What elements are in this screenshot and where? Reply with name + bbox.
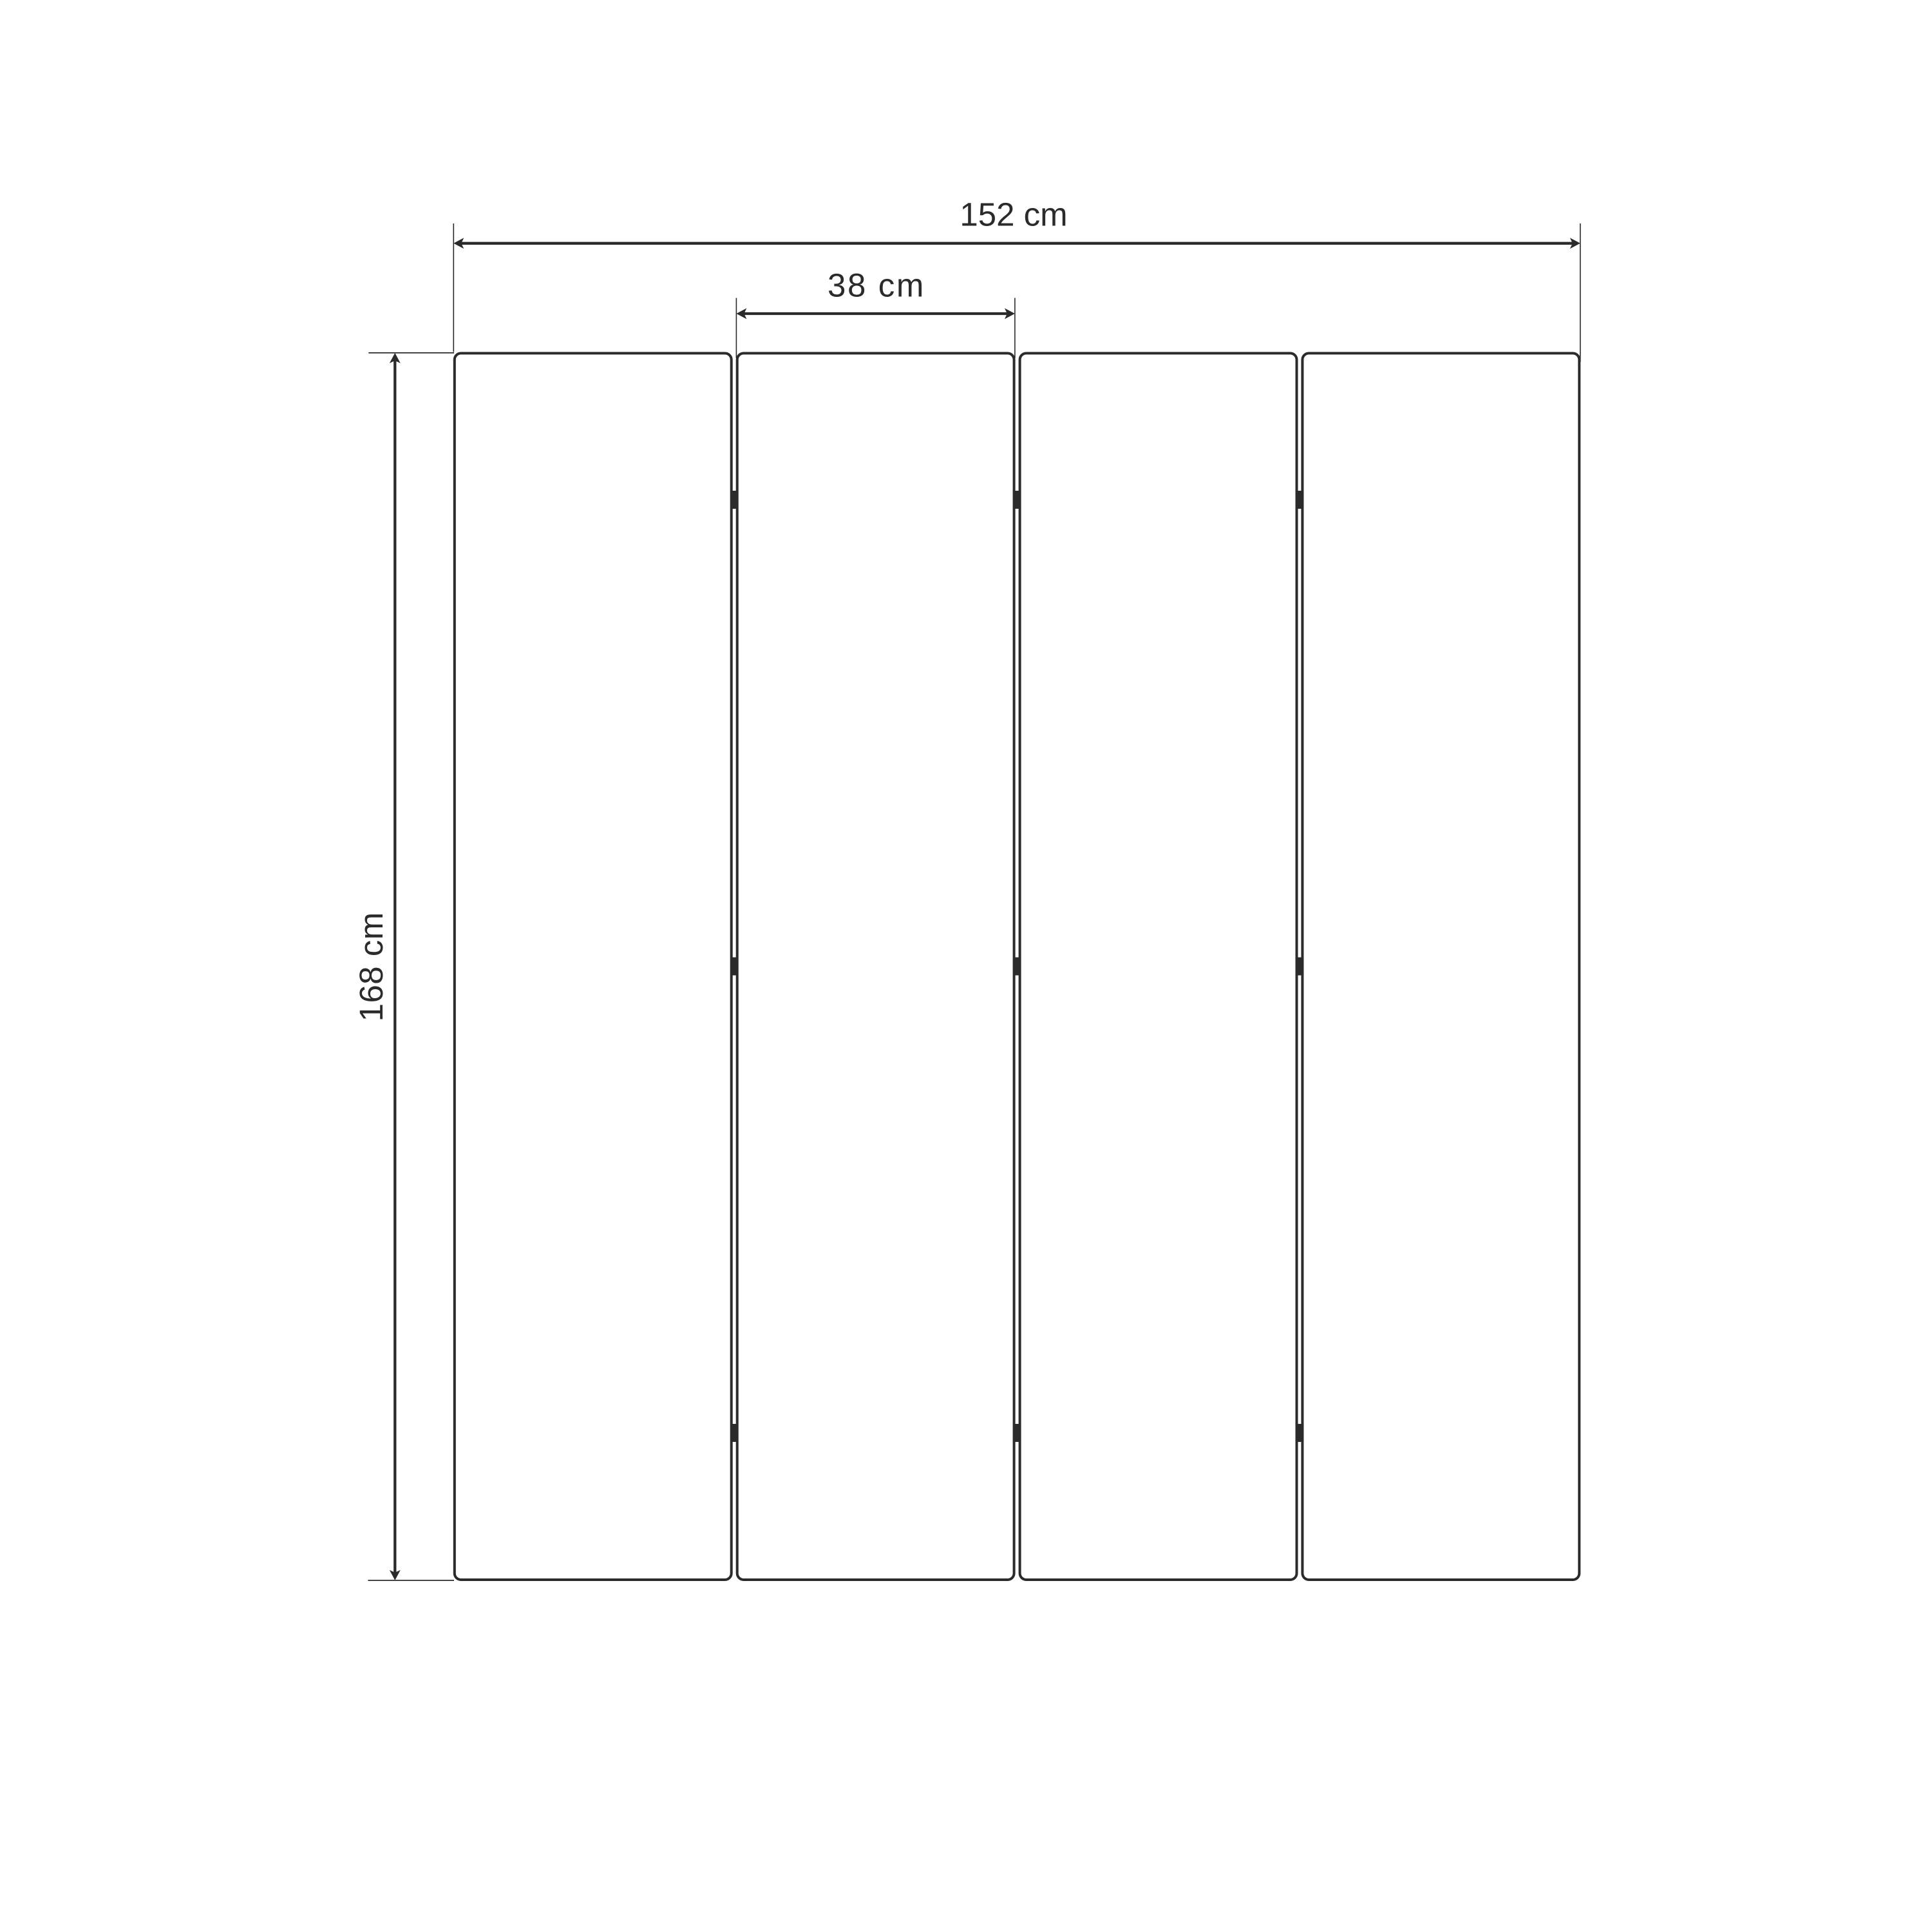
svg-text:152 cm: 152 cm xyxy=(960,196,1067,232)
svg-text:168 cm: 168 cm xyxy=(353,912,390,1021)
svg-text:38 cm: 38 cm xyxy=(828,267,925,304)
